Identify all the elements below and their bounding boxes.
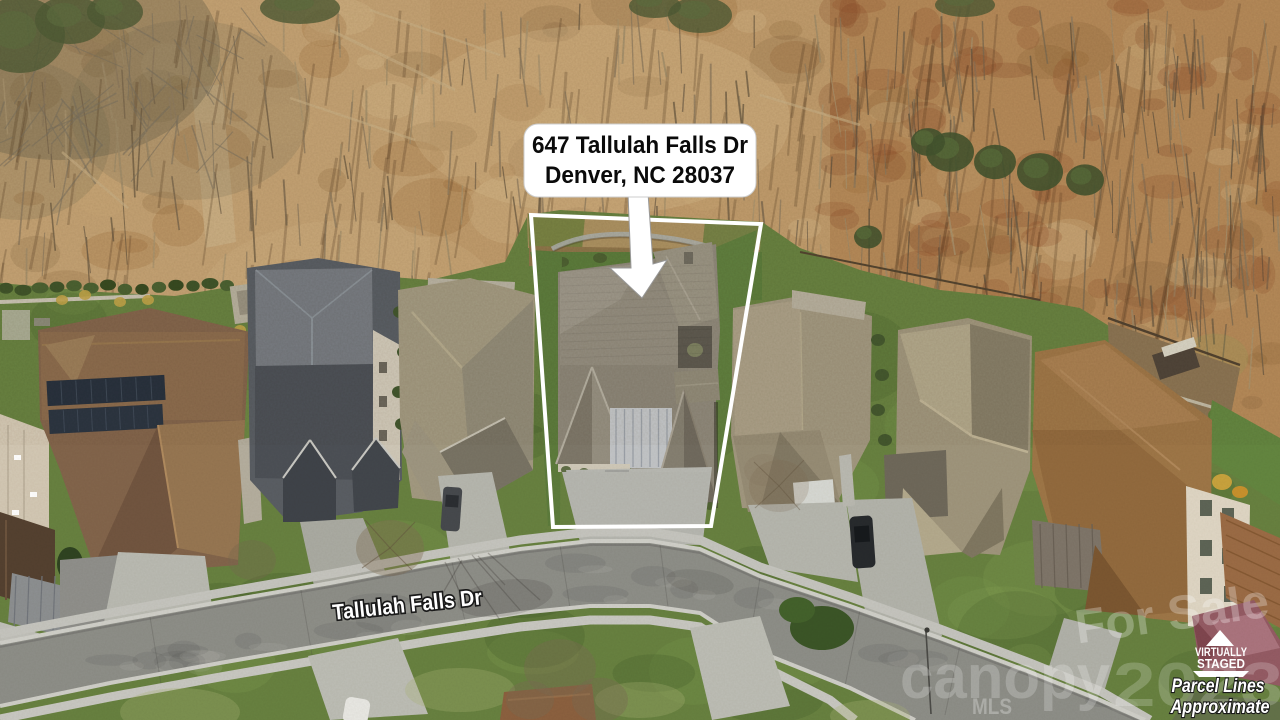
- svg-text:Denver, NC 28037: Denver, NC 28037: [545, 162, 735, 189]
- svg-text:MLS: MLS: [972, 694, 1012, 719]
- svg-text:Parcel Lines: Parcel Lines: [1172, 676, 1265, 697]
- svg-text:647 Tallulah Falls Dr: 647 Tallulah Falls Dr: [532, 132, 748, 159]
- svg-text:Approximate: Approximate: [1170, 697, 1270, 718]
- svg-text:STAGED: STAGED: [1197, 656, 1245, 671]
